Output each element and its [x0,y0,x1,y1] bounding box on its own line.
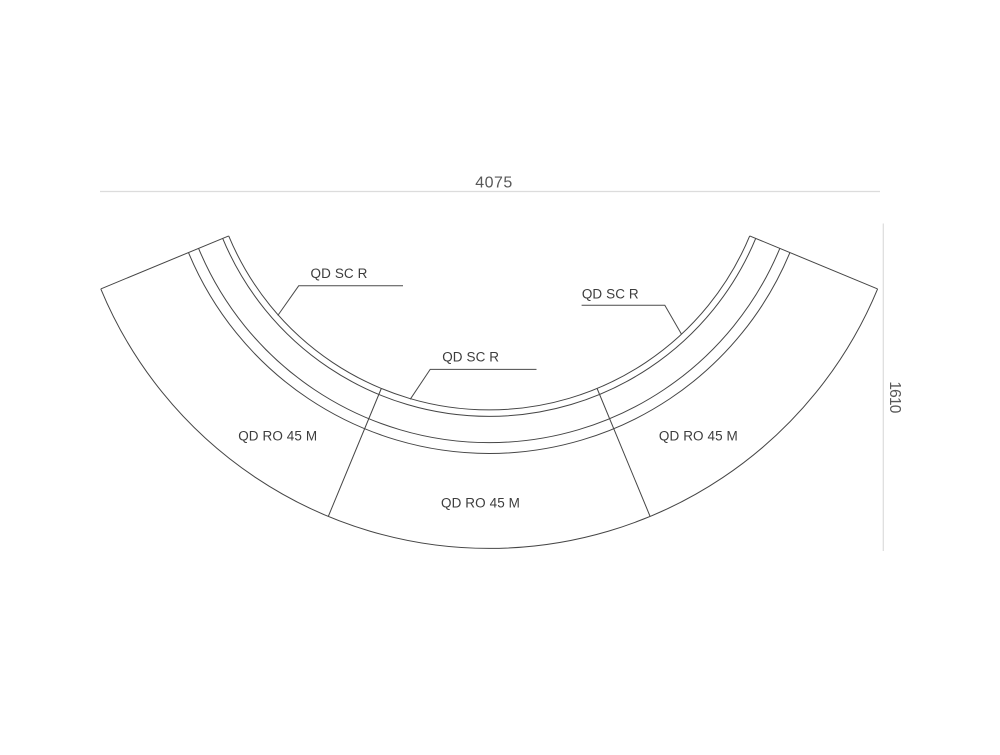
svg-text:1610: 1610 [886,381,903,413]
svg-text:QD RO 45 M: QD RO 45 M [441,496,520,511]
svg-text:QD SC R: QD SC R [582,286,639,301]
svg-text:QD SC R: QD SC R [311,266,368,281]
svg-text:QD RO 45 M: QD RO 45 M [659,429,738,444]
svg-text:QD SC R: QD SC R [442,350,499,365]
svg-text:QD RO 45 M: QD RO 45 M [238,429,317,444]
svg-text:4075: 4075 [475,175,513,192]
